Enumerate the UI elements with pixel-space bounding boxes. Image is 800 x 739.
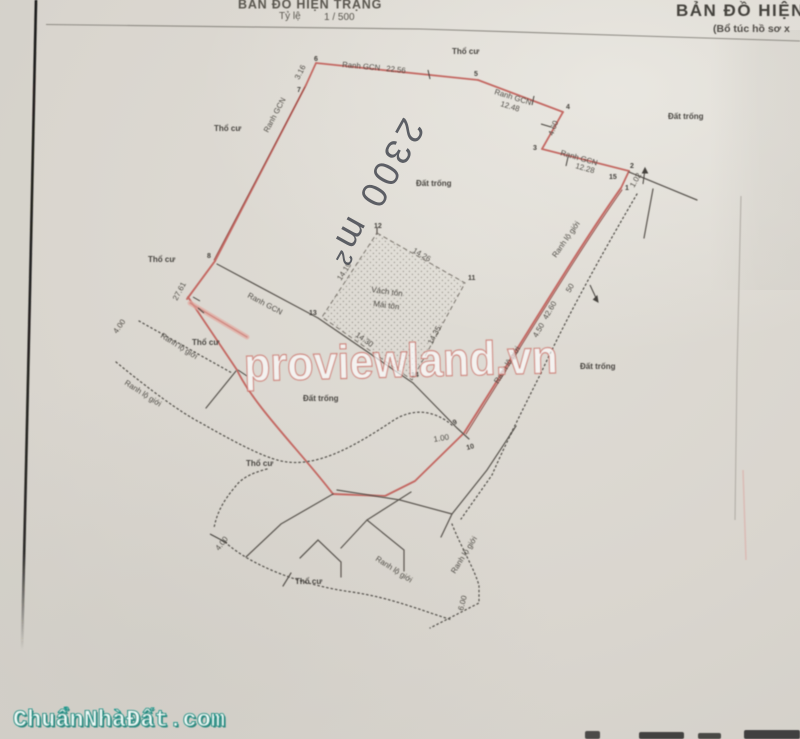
svg-text:Thổ cư: Thổ cư xyxy=(214,124,241,133)
svg-text:Đất trống: Đất trống xyxy=(416,179,452,188)
svg-text:15: 15 xyxy=(609,174,617,181)
svg-text:6: 6 xyxy=(314,56,318,63)
svg-text:BẢN ĐỒ HIỆN: BẢN ĐỒ HIỆN xyxy=(676,1,800,20)
svg-text:Thổ cư: Thổ cư xyxy=(148,255,175,264)
svg-text:Đất trống: Đất trống xyxy=(580,362,616,371)
svg-text:7: 7 xyxy=(297,87,301,94)
svg-text:Tỷ lệ: Tỷ lệ xyxy=(279,10,301,22)
svg-text:(Bổ túc hồ sơ x: (Bổ túc hồ sơ x xyxy=(713,23,790,35)
svg-text:2: 2 xyxy=(630,163,634,170)
svg-text:Đất trống: Đất trống xyxy=(303,394,339,403)
svg-text:Thổ cư: Thổ cư xyxy=(452,47,479,56)
svg-text:Thổ cư: Thổ cư xyxy=(246,459,273,468)
svg-text:Đất trống: Đất trống xyxy=(668,112,704,121)
svg-text:11: 11 xyxy=(468,275,476,282)
svg-text:1: 1 xyxy=(625,185,629,192)
svg-text:ChuẩnNhàĐất.com: ChuẩnNhàĐất.com xyxy=(13,706,225,734)
svg-text:5: 5 xyxy=(474,71,478,78)
svg-text:3: 3 xyxy=(533,145,537,152)
svg-text:13: 13 xyxy=(309,310,317,317)
svg-text:Thổ cư: Thổ cư xyxy=(192,338,219,347)
svg-text:BẢN ĐỒ HIỆN TRẠNG: BẢN ĐỒ HIỆN TRẠNG xyxy=(238,0,382,12)
svg-text:proviewland.vn: proviewland.vn xyxy=(243,330,558,391)
svg-text:1 / 500: 1 / 500 xyxy=(324,12,355,23)
svg-text:4: 4 xyxy=(566,104,570,111)
svg-text:8: 8 xyxy=(207,253,211,260)
svg-text:Thổ cư: Thổ cư xyxy=(295,577,322,586)
